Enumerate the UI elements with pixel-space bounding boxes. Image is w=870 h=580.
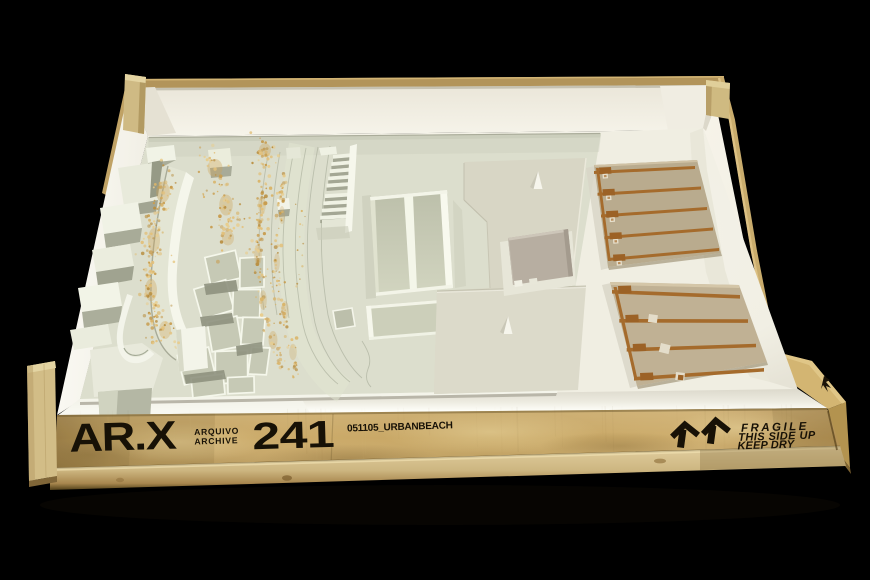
- svg-text:KEEP DRY: KEEP DRY: [737, 439, 796, 453]
- svg-text:241: 241: [252, 414, 335, 458]
- svg-text:AR.X: AR.X: [69, 414, 178, 461]
- svg-text:ARCHIVE: ARCHIVE: [194, 435, 238, 446]
